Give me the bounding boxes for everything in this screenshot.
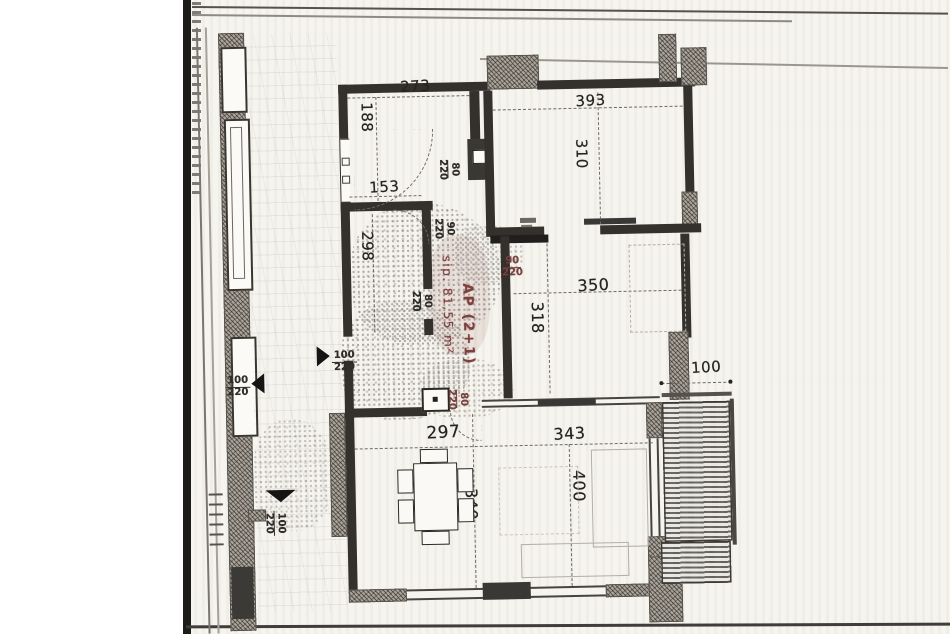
door-label-bath-num: 90 (443, 219, 455, 237)
niche-box-1 (342, 158, 350, 166)
kitchen-door-arc (353, 129, 435, 211)
chain-310 (597, 92, 601, 224)
stair-tread-6 (210, 543, 224, 545)
bath-right-wall-upper (422, 209, 433, 289)
door-label-wc-num: 80 (420, 292, 432, 310)
dim-100: 100 (691, 357, 722, 377)
chair-top (420, 449, 448, 464)
sofa-bottom (521, 542, 630, 578)
door-label-midroom: 90220 (502, 248, 523, 278)
door-label-corridor-den: 220 (263, 513, 274, 534)
apartment-type-label: AP (2+1) (459, 283, 477, 393)
door-label-neighbor: 100220 (225, 368, 250, 399)
balcony-deck (662, 401, 733, 542)
facade-window-1 (220, 47, 247, 114)
living-radiator (538, 398, 596, 405)
stair-tread-2 (209, 503, 223, 505)
facade-window-2-frame (230, 127, 245, 279)
door-label-wc: 80220 (410, 290, 440, 311)
chair-bottom (421, 531, 449, 546)
bottom-wall-hatch-left (349, 588, 407, 602)
apartment-area-label: sip. 81,55 m² (440, 255, 457, 390)
door-label-corridor: 100220 (263, 510, 294, 535)
door-label-corridor-num: 100 (274, 511, 286, 536)
stair-tread-1 (209, 493, 223, 495)
door-label-bath-den: 220 (432, 218, 443, 239)
chain-100 (661, 382, 731, 384)
arrow-left-icon (251, 373, 264, 393)
facade-dark-panel (231, 567, 254, 619)
top-column-1 (487, 55, 540, 90)
door-label-neighbor-den: 220 (227, 387, 248, 398)
dim-298: 298 (358, 231, 377, 262)
chair-left-1 (397, 469, 413, 493)
sofa-right (591, 448, 649, 547)
arrow-right-icon (317, 346, 330, 366)
bedroom-left-wall (483, 91, 495, 237)
dining-table (413, 462, 458, 531)
door-label-living-den: 220 (446, 389, 457, 410)
dim-343: 343 (553, 423, 586, 444)
door-label-wc-den: 220 (410, 291, 421, 312)
door-label-bath: 90220 (432, 218, 462, 239)
living-top-wall-left (345, 407, 427, 418)
stair-tread-4 (209, 523, 223, 525)
door-label-entrance-den: 220 (334, 362, 355, 373)
chair-left-2 (398, 499, 414, 523)
smudge-2 (521, 225, 532, 228)
chain-100-dot-right (728, 380, 732, 384)
right-column-2 (668, 332, 689, 400)
panel-dot (433, 397, 438, 402)
dim-350: 350 (577, 275, 610, 296)
dim-318: 318 (528, 301, 548, 333)
chair-right-2 (458, 498, 474, 522)
balcony-top-edge (662, 392, 732, 397)
bottom-wall-dark-block (483, 582, 531, 600)
dim-393: 393 (575, 91, 606, 111)
door-label-entrance: 100220 (332, 342, 357, 373)
chain-100-dot-left (659, 381, 663, 385)
door-label-midroom-den: 220 (502, 267, 523, 278)
smudge-1 (520, 218, 536, 223)
balcony-deck-lower (661, 541, 732, 584)
window-wall-hatch-top (646, 402, 663, 438)
floorplan-scan-page: 273 188 393 310 153 298 350 318 100 297 … (0, 0, 950, 634)
niche-box-2 (342, 176, 350, 184)
sliding-door-pocket (490, 234, 548, 243)
stair-tread-3 (209, 513, 223, 515)
bath-right-wall-lower (424, 319, 433, 335)
left-wall-niche (340, 139, 350, 203)
wardrobe (629, 244, 687, 333)
floorplan-drawing: 273 188 393 310 153 298 350 318 100 297 … (0, 0, 950, 634)
chair-right-1 (457, 468, 473, 492)
top-column-stub (658, 34, 677, 82)
stair-tread-5 (209, 533, 223, 535)
rug (498, 466, 579, 536)
dim-188: 188 (357, 102, 376, 133)
arrow-down-icon (266, 490, 296, 503)
dim-297: 297 (426, 422, 461, 444)
kitchen-right-wall (469, 91, 480, 141)
chain-318 (546, 243, 550, 393)
door-label-kitchen-den: 220 (437, 159, 448, 180)
door-label-kitchen: 80220 (437, 159, 467, 180)
dim-273: 273 (400, 76, 431, 96)
bedroom-radiator (584, 218, 636, 225)
dim-310: 310 (572, 139, 591, 170)
top-right-corner-column (680, 47, 707, 86)
door-label-kitchen-num: 80 (448, 160, 460, 178)
bedroom-right-wall (683, 85, 694, 193)
living-window (649, 438, 661, 538)
dim-153: 153 (369, 177, 400, 197)
